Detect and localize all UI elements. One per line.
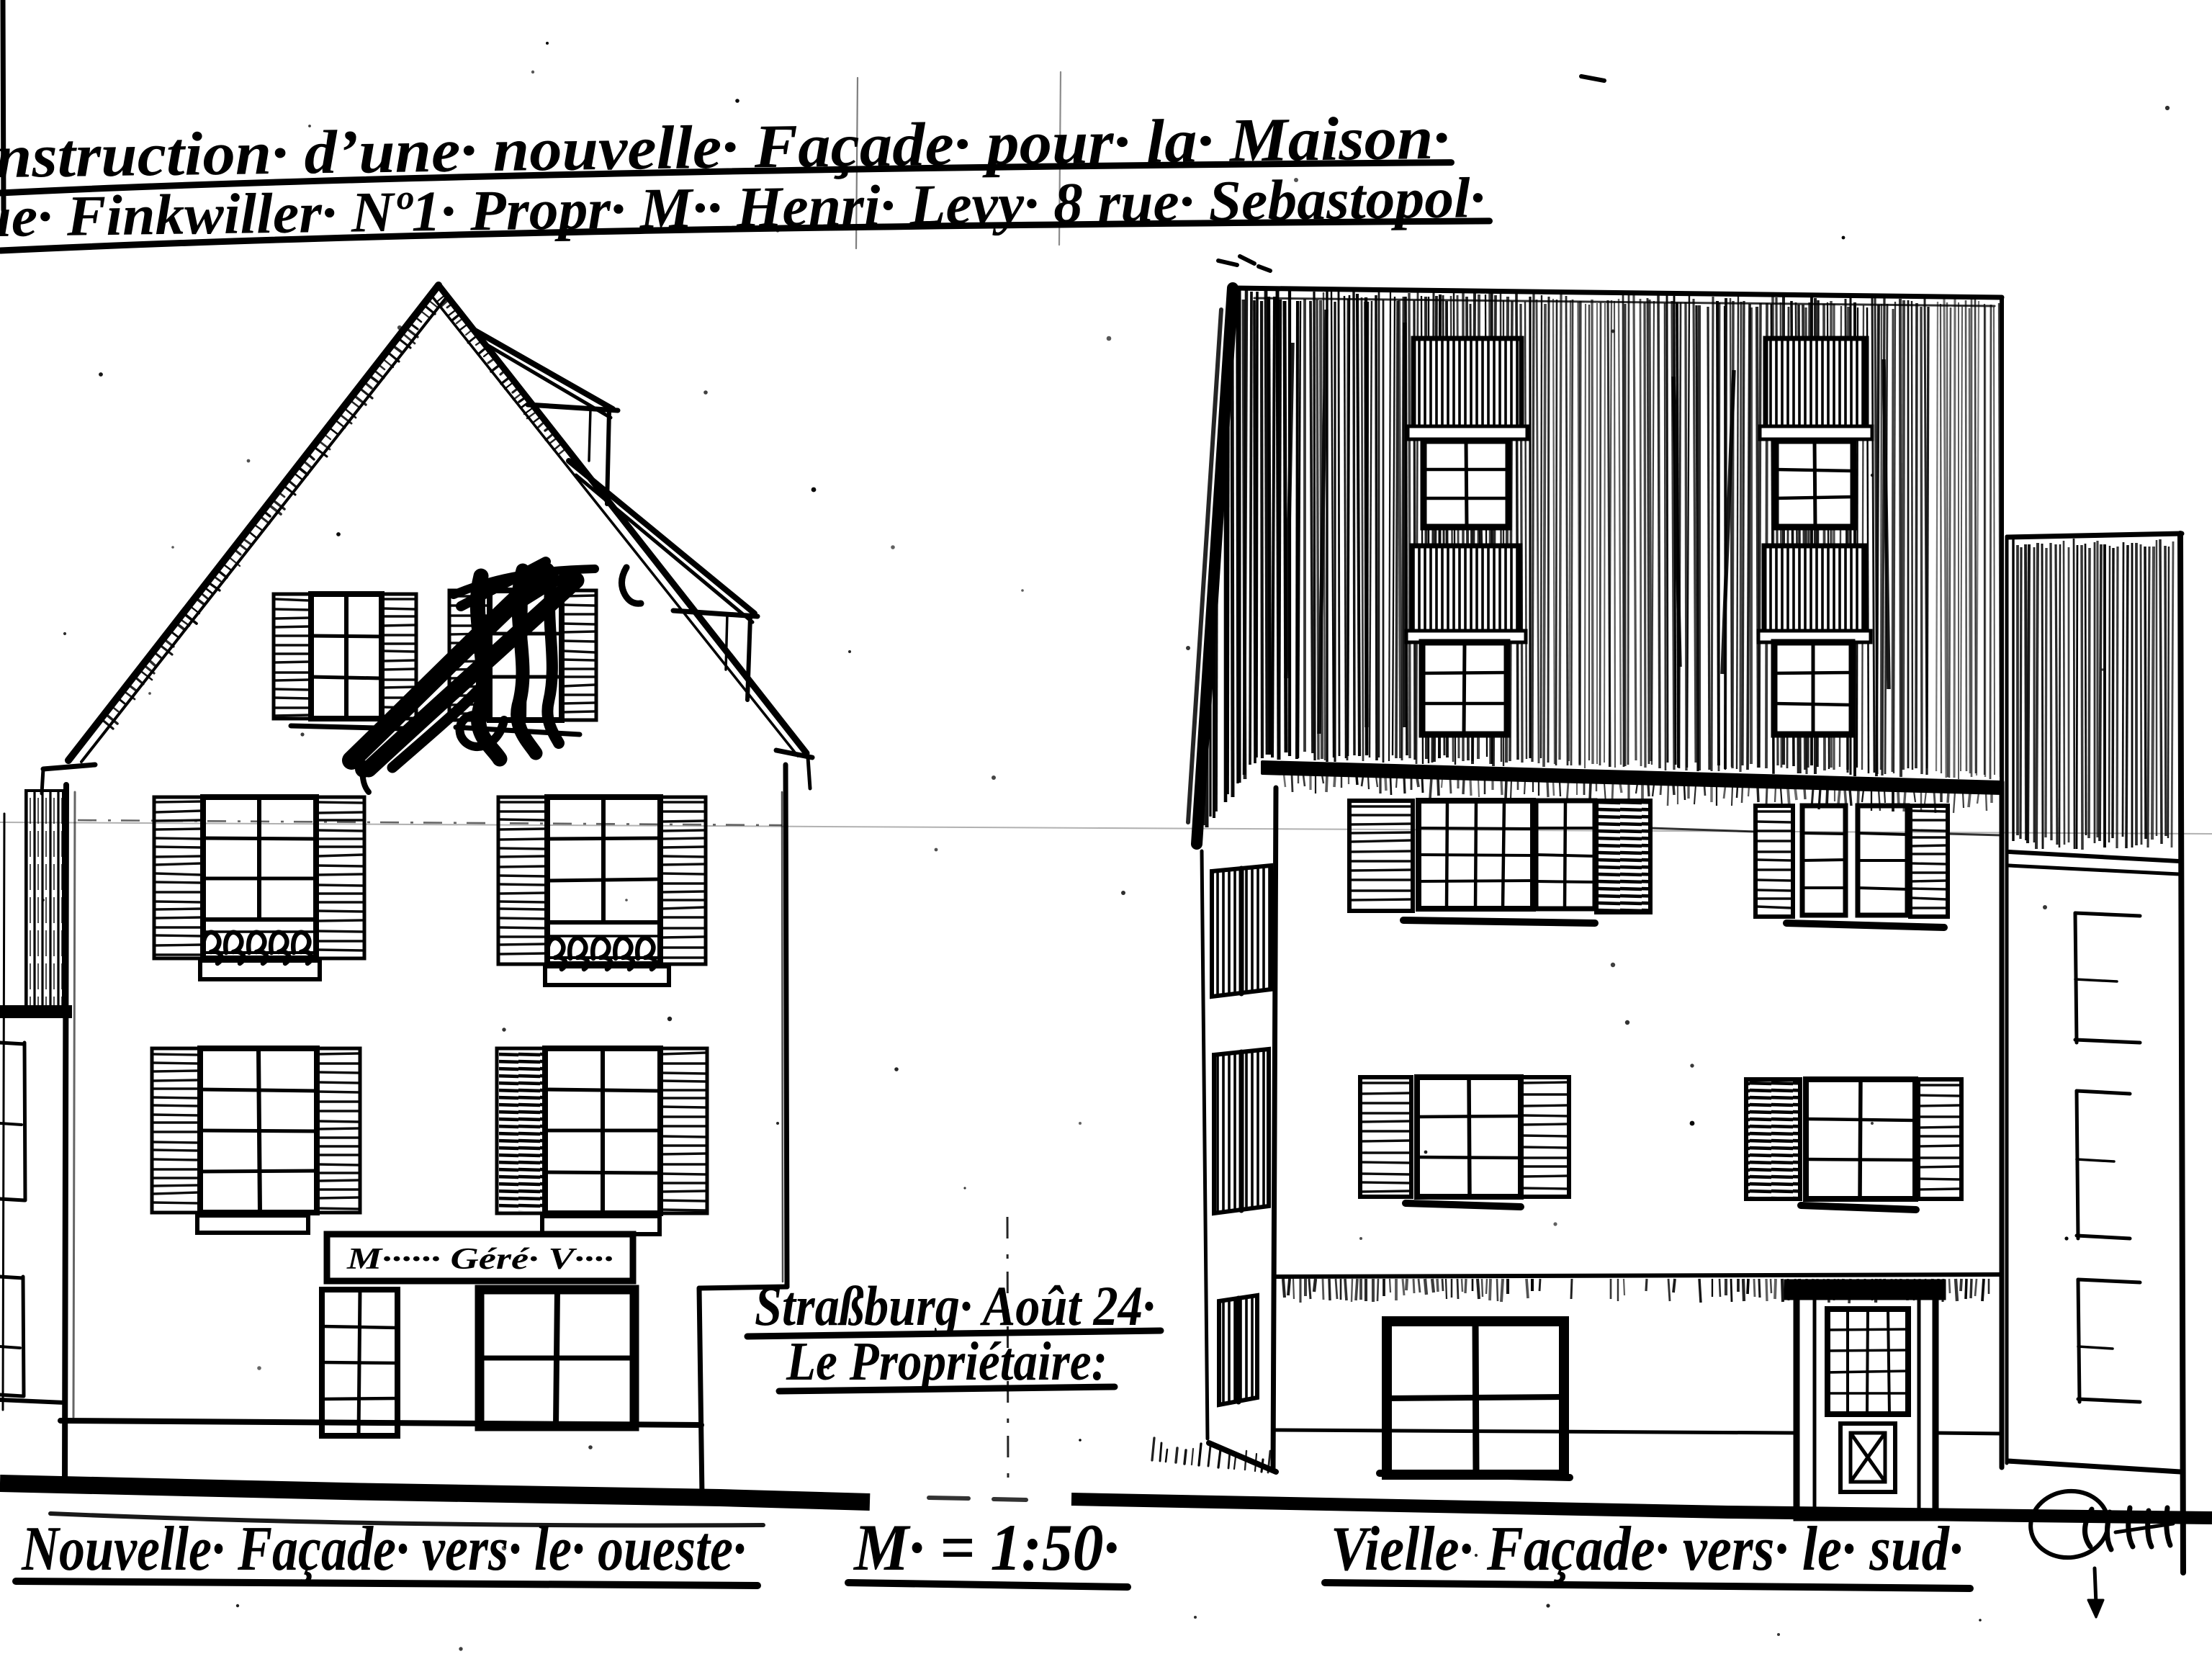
svg-text:M· = 1:50·: M· = 1:50· [853,1511,1119,1584]
svg-text:Nouvelle· Façade· vers· le· ou: Nouvelle· Façade· vers· le· oueste· [21,1514,746,1584]
svg-text:M······ Géré· V····: M······ Géré· V···· [346,1243,613,1276]
svg-text:Le Propriétaire:: Le Propriétaire: [786,1331,1107,1392]
svg-text:Straßburg· Août 24·: Straßburg· Août 24· [755,1274,1155,1337]
svg-text:Vielle· Façade· vers· le· sud·: Vielle· Façade· vers· le· sud· [1331,1514,1963,1584]
